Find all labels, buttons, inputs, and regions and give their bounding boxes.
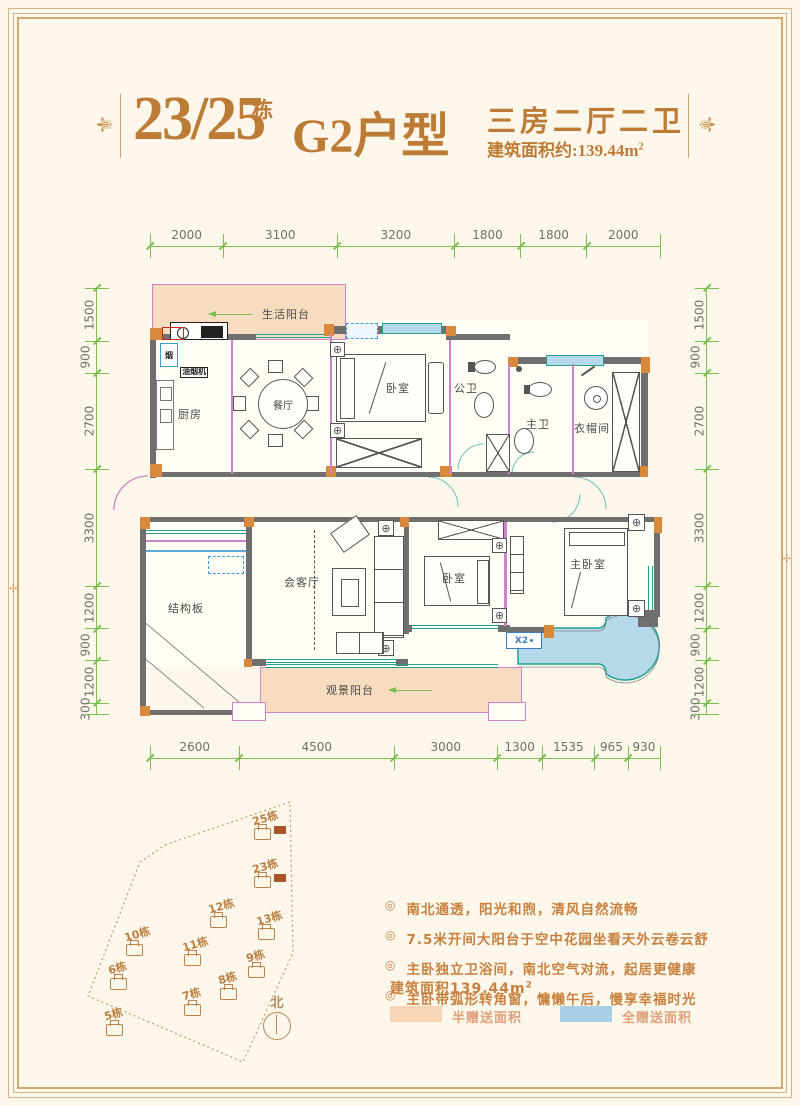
- stove-panel: [201, 326, 223, 338]
- nightstand: [330, 342, 345, 357]
- glass-line: [146, 550, 246, 552]
- ac-platform: [208, 556, 244, 574]
- toilet-icon: [528, 382, 552, 397]
- floorplan-poster: ✣ ✣ ⚜ 23/25 栋 G2户型 三房二厅二卫 建筑面积约:139.44m2…: [0, 0, 800, 1106]
- range-hood-label: 油烟机: [180, 367, 208, 378]
- sofa: [374, 536, 404, 638]
- total-area-sup: 2: [526, 980, 533, 990]
- column: [140, 706, 150, 716]
- title-divider-left: [120, 94, 121, 158]
- nightstand: [492, 608, 507, 623]
- flue-label: 烟: [165, 350, 173, 361]
- building-footprint-icon: [126, 944, 143, 956]
- sink-icon: [160, 387, 172, 401]
- column: [140, 517, 150, 529]
- floor-plan: 生活阳台: [140, 270, 670, 740]
- partition: [572, 364, 574, 474]
- wardrobe: [336, 438, 422, 468]
- bed: [564, 528, 628, 616]
- dimension-value: 300: [688, 697, 702, 720]
- dimension-tick: [695, 714, 719, 715]
- dimension-tick: [660, 746, 661, 770]
- dimension-value: 2600: [179, 740, 210, 754]
- building-footprint-icon: [248, 966, 265, 978]
- chair: [268, 360, 283, 373]
- dimension-value: 965: [600, 740, 623, 754]
- dining-table: 餐厅: [258, 379, 308, 429]
- kitchen-counter: [156, 380, 174, 450]
- shaft: [486, 434, 510, 472]
- building-footprint-icon: [106, 1024, 123, 1036]
- partition: [449, 340, 451, 474]
- dimension-value: 1200: [692, 592, 706, 623]
- area-approx-sup: 2: [639, 141, 644, 152]
- chair: [233, 396, 246, 411]
- column: [544, 625, 554, 638]
- nightstand: [492, 538, 507, 553]
- window-band: [146, 530, 246, 534]
- north-arrow-icon: [263, 1012, 291, 1040]
- column: [400, 517, 409, 527]
- north-indicator: 北: [262, 992, 292, 1040]
- cabinet: [510, 536, 524, 594]
- dining-label: 餐厅: [273, 397, 293, 412]
- column: [641, 357, 650, 373]
- building-footprint-icon: [110, 978, 127, 990]
- title-divider-right: [688, 94, 689, 158]
- dimension-rail-right: 15009002700330012009001200300: [706, 288, 707, 714]
- coffee-table: [332, 568, 366, 616]
- block-number: 23/25: [133, 84, 264, 155]
- window-band: [412, 625, 498, 629]
- selling-point: 南北通透，阳光和煦，清风自然流畅: [385, 898, 638, 918]
- unit-type-title: G2户型: [292, 96, 449, 166]
- structure-diagonal: [142, 620, 246, 708]
- dimension-value: 3000: [430, 740, 461, 754]
- chair: [268, 434, 283, 447]
- dimension-value: 3200: [381, 228, 412, 242]
- dimension-value: 2000: [608, 228, 639, 242]
- structure-diagonal: [142, 656, 204, 708]
- x2-label: X2: [515, 636, 528, 646]
- door-arc: [458, 444, 484, 470]
- legend-label: 全赠送面积: [622, 1007, 692, 1026]
- dimension-value: 1500: [82, 299, 96, 330]
- building-footprint-icon: [184, 954, 201, 966]
- window-glazing: [382, 323, 442, 334]
- selling-point-text: 南北通透，阳光和煦，清风自然流畅: [406, 898, 638, 918]
- dimension-value: 300: [78, 697, 92, 720]
- selling-point-text: 7.5米开间大阳台于空中花园坐看天外云卷云舒: [406, 928, 708, 948]
- cloakroom-label: 衣帽间: [574, 420, 610, 436]
- dimension-value: 2700: [82, 406, 96, 437]
- nightstand: [330, 423, 345, 438]
- building-footprint-icon: [184, 1004, 201, 1016]
- legend-label: 半赠送面积: [452, 1007, 522, 1026]
- bed: [336, 354, 426, 422]
- dimension-value: 3100: [265, 228, 296, 242]
- x2-tag: X2: [506, 632, 542, 649]
- wall-segment: [404, 522, 409, 634]
- pillow: [569, 532, 625, 546]
- rooms-line: 三房二厅二卫: [487, 98, 685, 140]
- wall-segment: [246, 517, 252, 667]
- table-inset: [341, 579, 359, 607]
- dresser: [428, 362, 444, 414]
- dimension-value: 1300: [504, 740, 535, 754]
- dimension-rail-bottom: 26004500300013001535965930: [150, 758, 660, 759]
- washer-drum: [593, 395, 601, 403]
- column: [244, 659, 252, 667]
- pillow: [340, 358, 355, 419]
- tv-wall: [308, 530, 315, 650]
- fleur-right-icon: ⚜: [693, 115, 718, 135]
- area-approx-line: 建筑面积约:139.44m2: [487, 136, 644, 161]
- window-glazing: [546, 355, 604, 366]
- column: [654, 517, 662, 533]
- kitchen-label: 厨房: [178, 406, 202, 422]
- selling-point: 7.5米开间大阳台于空中花园坐看天外云卷云舒: [385, 928, 709, 948]
- dimension-value: 3300: [692, 512, 706, 543]
- toilet-tank: [468, 362, 475, 372]
- structure-board-label: 结构板: [168, 600, 204, 616]
- public-bath-label: 公卫: [454, 380, 478, 396]
- window-band: [266, 659, 396, 663]
- column: [244, 517, 254, 527]
- dimension-value: 1200: [82, 667, 96, 698]
- master-bedroom-label: 主卧室: [570, 556, 606, 572]
- bed-fold: [369, 362, 387, 414]
- toilet-icon: [474, 360, 496, 374]
- dimension-tick: [85, 714, 109, 715]
- column: [324, 324, 334, 336]
- dimension-value: 4500: [302, 740, 333, 754]
- window-band: [648, 566, 653, 610]
- ottoman: [336, 632, 384, 654]
- selling-point: 主卧独立卫浴间，南北空气对流，起居更健康: [385, 958, 696, 978]
- sink-icon: [160, 409, 172, 423]
- balcony-post: [232, 702, 266, 721]
- dimension-rail-left: 15009002700330012009001200300: [96, 288, 97, 714]
- north-label: 北: [262, 992, 292, 1011]
- pillow: [477, 560, 489, 604]
- legend-swatch: [560, 1006, 612, 1022]
- x2-dot: [530, 639, 533, 642]
- dimension-value: 1535: [553, 740, 584, 754]
- wall-segment: [140, 517, 252, 522]
- dimension-value: 900: [78, 346, 92, 369]
- master-bath-label: 主卫: [526, 416, 550, 432]
- building-footprint-icon: [258, 928, 275, 940]
- building-footprint-icon: [210, 916, 227, 928]
- wall-segment: [404, 625, 412, 632]
- dimension-value: 3300: [82, 512, 96, 543]
- fleur-left-icon: ⚜: [93, 115, 118, 135]
- door-arc: [512, 452, 534, 474]
- ac-platform: [346, 323, 378, 339]
- balcony-post: [488, 702, 526, 721]
- legend-swatch: [390, 1006, 442, 1022]
- frame-ornament-left: ✣: [9, 584, 17, 595]
- building-footprint-icon: [220, 988, 237, 1000]
- selling-point-text: 主卧独立卫浴间，南北空气对流，起居更健康: [406, 958, 696, 978]
- column: [150, 464, 162, 477]
- flue-shaft: 烟: [160, 343, 178, 367]
- dimension-value: 1500: [692, 299, 706, 330]
- shower-icon: [516, 366, 522, 372]
- living-label: 会客厅: [284, 574, 320, 590]
- dimension-rail-top: 200031003200180018002000: [150, 246, 660, 247]
- dimension-value: 1800: [538, 228, 569, 242]
- total-area-line: 建筑面积139.44m2: [390, 978, 533, 998]
- block-unit: 栋: [252, 94, 273, 124]
- door-arc: [574, 477, 606, 509]
- building-highlight: [274, 826, 286, 834]
- dimension-value: 900: [688, 346, 702, 369]
- total-area-text: 建筑面积139.44m: [390, 981, 526, 997]
- window-band: [266, 664, 498, 668]
- column: [446, 326, 456, 336]
- door-arc: [428, 477, 458, 507]
- dimension-value: 1200: [82, 592, 96, 623]
- building-highlight: [274, 874, 286, 882]
- side-table: [378, 520, 394, 536]
- fire-box-icon: [162, 327, 184, 340]
- dimension-tick: [660, 234, 661, 258]
- column: [640, 466, 648, 477]
- closet: [438, 520, 504, 540]
- dimension-value: 930: [633, 740, 656, 754]
- column: [150, 328, 162, 340]
- wall-segment: [250, 659, 266, 666]
- wardrobe: [612, 372, 640, 472]
- entry-door-arc: [114, 476, 148, 510]
- dimension-value: 1800: [472, 228, 503, 242]
- dimension-value: 900: [688, 633, 702, 656]
- north-needle: [276, 1015, 278, 1034]
- view-balcony-arrow-icon: [390, 690, 432, 691]
- bedroom-top-label: 卧室: [386, 380, 410, 396]
- dimension-value: 2000: [171, 228, 202, 242]
- nightstand: [628, 514, 645, 531]
- area-approx-text: 建筑面积约:139.44m: [487, 141, 639, 160]
- nightstand: [628, 600, 645, 617]
- window-band: [256, 334, 332, 338]
- dimension-value: 2700: [692, 406, 706, 437]
- building-footprint-icon: [254, 876, 271, 888]
- dimension-value: 1200: [692, 667, 706, 698]
- view-balcony-label: 观景阳台: [326, 682, 374, 698]
- dimension-value: 900: [78, 633, 92, 656]
- frame-ornament-right: ✣: [783, 554, 791, 565]
- toilet-tank: [524, 385, 530, 394]
- building-footprint-icon: [254, 828, 271, 840]
- wall-segment: [641, 357, 648, 475]
- bedroom2-label: 卧室: [442, 570, 466, 586]
- partition: [146, 540, 246, 542]
